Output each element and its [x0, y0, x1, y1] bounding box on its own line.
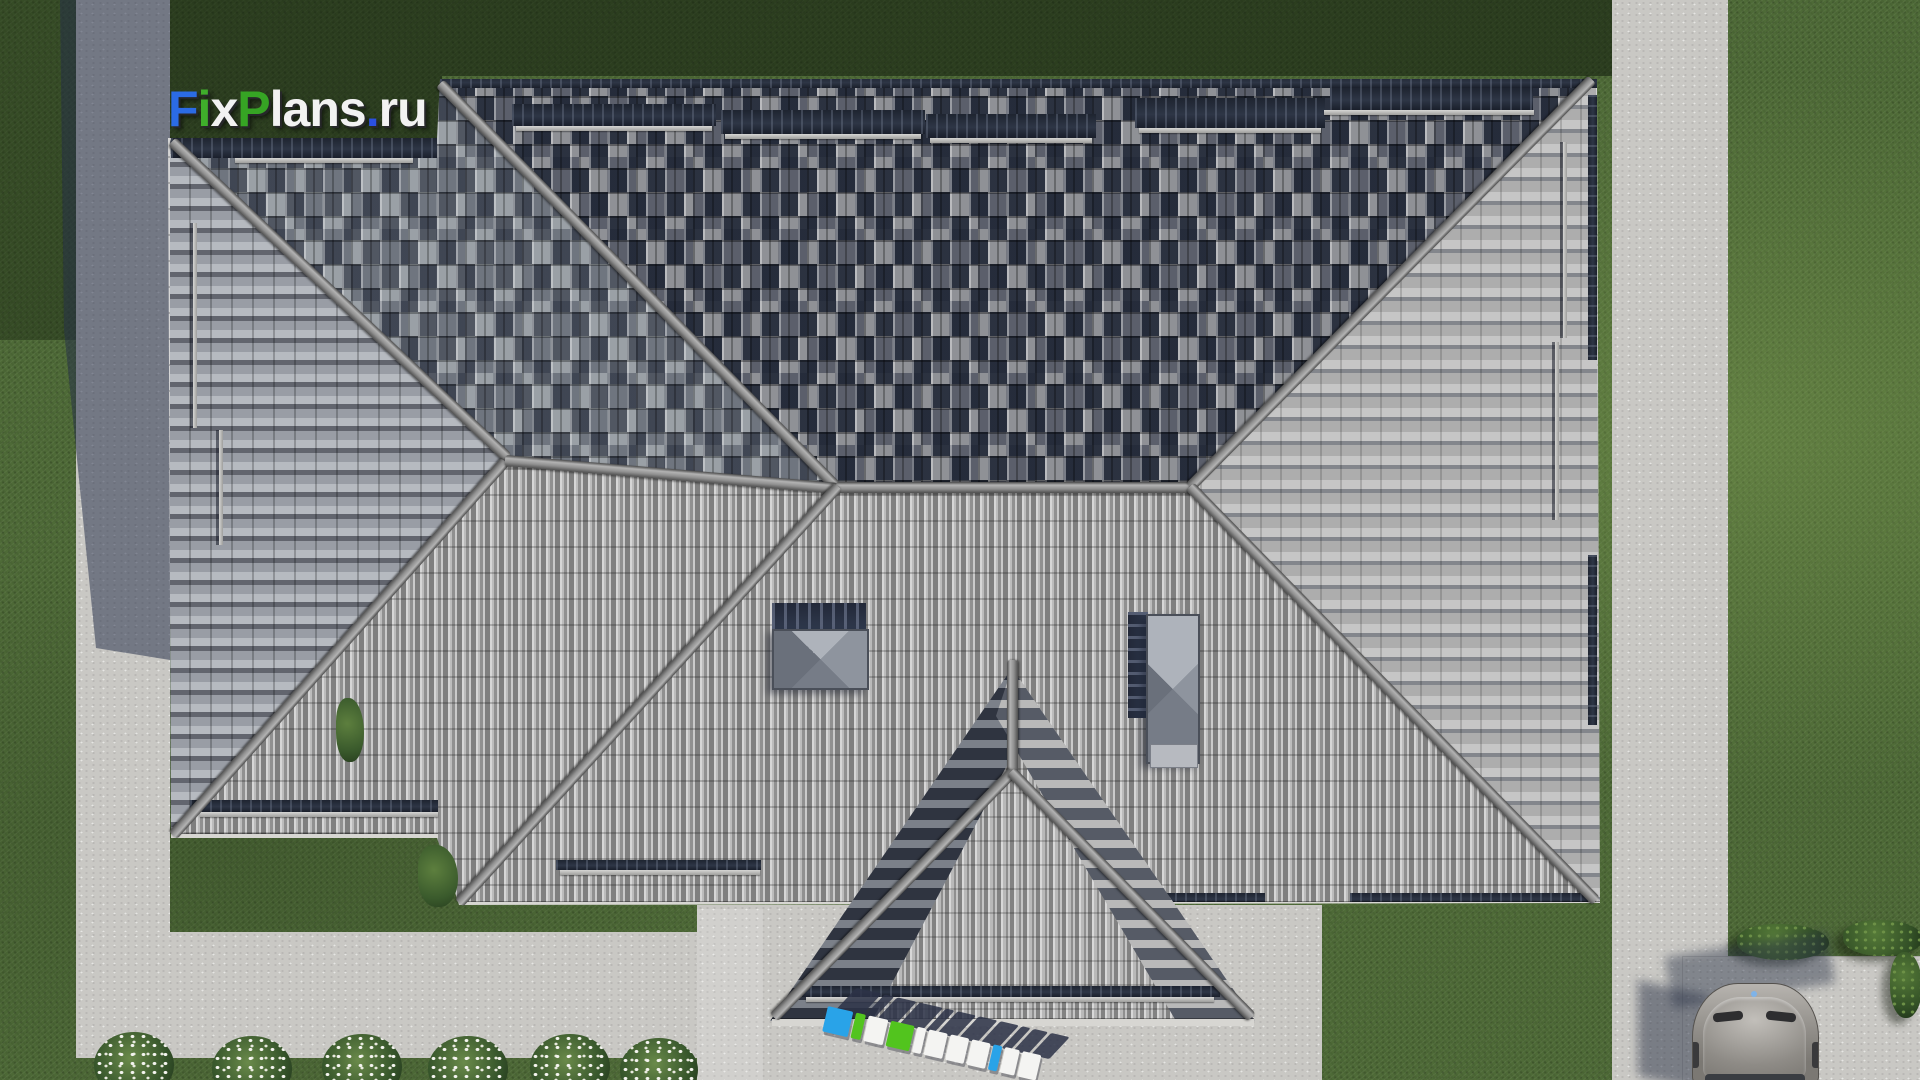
gutter-band: [190, 800, 438, 812]
snow-rail: [235, 158, 413, 163]
eave-band-right: [1588, 555, 1597, 725]
roof-vent-band: [1128, 612, 1148, 718]
eave-band: [721, 110, 925, 134]
car-hood: [1703, 997, 1806, 1079]
snow-rail-vertical: [1555, 342, 1559, 520]
watermark-logo: FixPlans.ru: [168, 84, 427, 134]
watermark-letter: l: [270, 81, 283, 137]
watermark-letter: .: [366, 81, 379, 137]
snow-rail-vertical: [193, 223, 197, 428]
roof-vent-base: [1150, 744, 1198, 768]
ground-logo-letter: [923, 1029, 947, 1059]
snow-rail: [1139, 128, 1321, 133]
walkway-bottom: [76, 932, 700, 1058]
car-wheel: [1692, 1042, 1699, 1068]
watermark-letter: r: [379, 81, 397, 137]
ground-logo-letter: [999, 1047, 1019, 1076]
snow-rail: [200, 812, 438, 817]
eave-band: [512, 104, 716, 126]
car-emblem: [1751, 991, 1757, 997]
roof-vent: [1146, 614, 1200, 764]
watermark-letter: i: [198, 81, 211, 137]
eave-band: [171, 138, 437, 158]
snow-rail: [1324, 110, 1534, 115]
snow-rail: [725, 134, 921, 139]
watermark-letter: F: [168, 81, 198, 137]
eave-band: [1135, 98, 1325, 128]
car: [1692, 983, 1819, 1080]
ground-logo-letter: [945, 1034, 969, 1064]
gutter-band: [556, 860, 761, 870]
snow-rail-vertical: [219, 430, 223, 545]
snow-rail: [930, 138, 1092, 143]
car-wheel: [1812, 1042, 1819, 1068]
ground-logo-letter: [966, 1039, 990, 1069]
watermark-letter: a: [283, 81, 310, 137]
snow-rail-vertical: [1563, 142, 1567, 338]
site-render: FixPlans.ru: [0, 0, 1920, 1080]
porch-ridge: [1007, 660, 1018, 778]
car-windshield: [1705, 1074, 1805, 1080]
eave-band: [1330, 88, 1533, 110]
ground-logo-letter: [863, 1015, 888, 1045]
roof-vent-band: [772, 603, 866, 631]
shrub: [1843, 920, 1920, 956]
watermark-letter: n: [309, 81, 339, 137]
watermark-letter: s: [339, 81, 366, 137]
watermark-letter: x: [210, 81, 237, 137]
patio-joint-strip: [697, 909, 763, 1080]
shrub: [1890, 952, 1920, 1018]
main-ridge: [836, 482, 1192, 493]
walkway-right: [1612, 0, 1728, 1080]
watermark-letter: P: [237, 81, 269, 137]
fascia-left-block: [168, 834, 438, 838]
roof-vent: [772, 629, 869, 690]
watermark-letter: u: [397, 81, 427, 137]
ground-logo-letter: [822, 1006, 853, 1037]
ground-logo-letter: [885, 1021, 914, 1052]
eave-band: [926, 114, 1096, 138]
snow-rail: [516, 126, 712, 131]
snow-rail: [560, 870, 760, 875]
eave-band-right: [1588, 95, 1597, 360]
